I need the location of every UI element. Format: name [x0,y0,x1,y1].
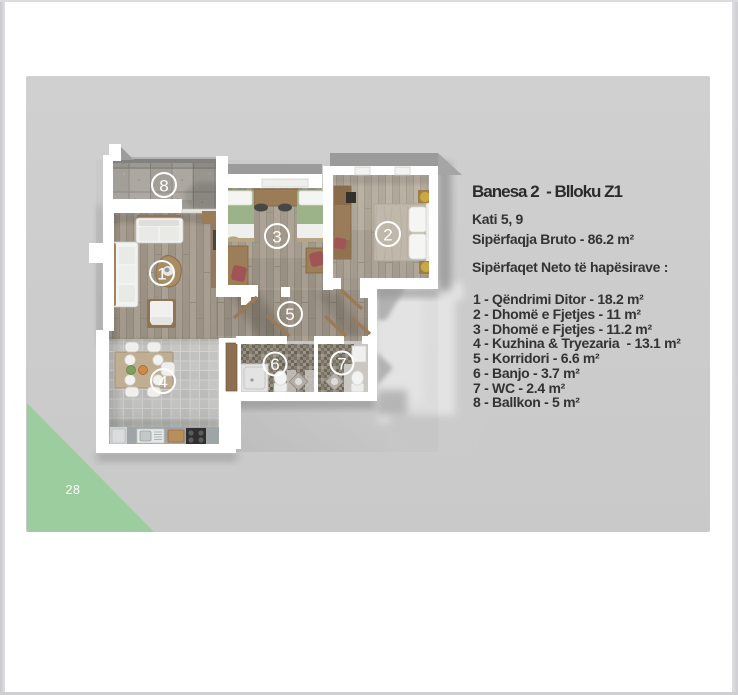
svg-text:2: 2 [383,226,392,245]
svg-text:1: 1 [157,265,166,284]
svg-text:6: 6 [270,355,279,374]
svg-text:3: 3 [272,228,281,247]
svg-text:5: 5 [285,305,294,324]
svg-text:7: 7 [337,355,346,374]
svg-text:4: 4 [158,373,167,392]
svg-text:8: 8 [159,177,168,196]
